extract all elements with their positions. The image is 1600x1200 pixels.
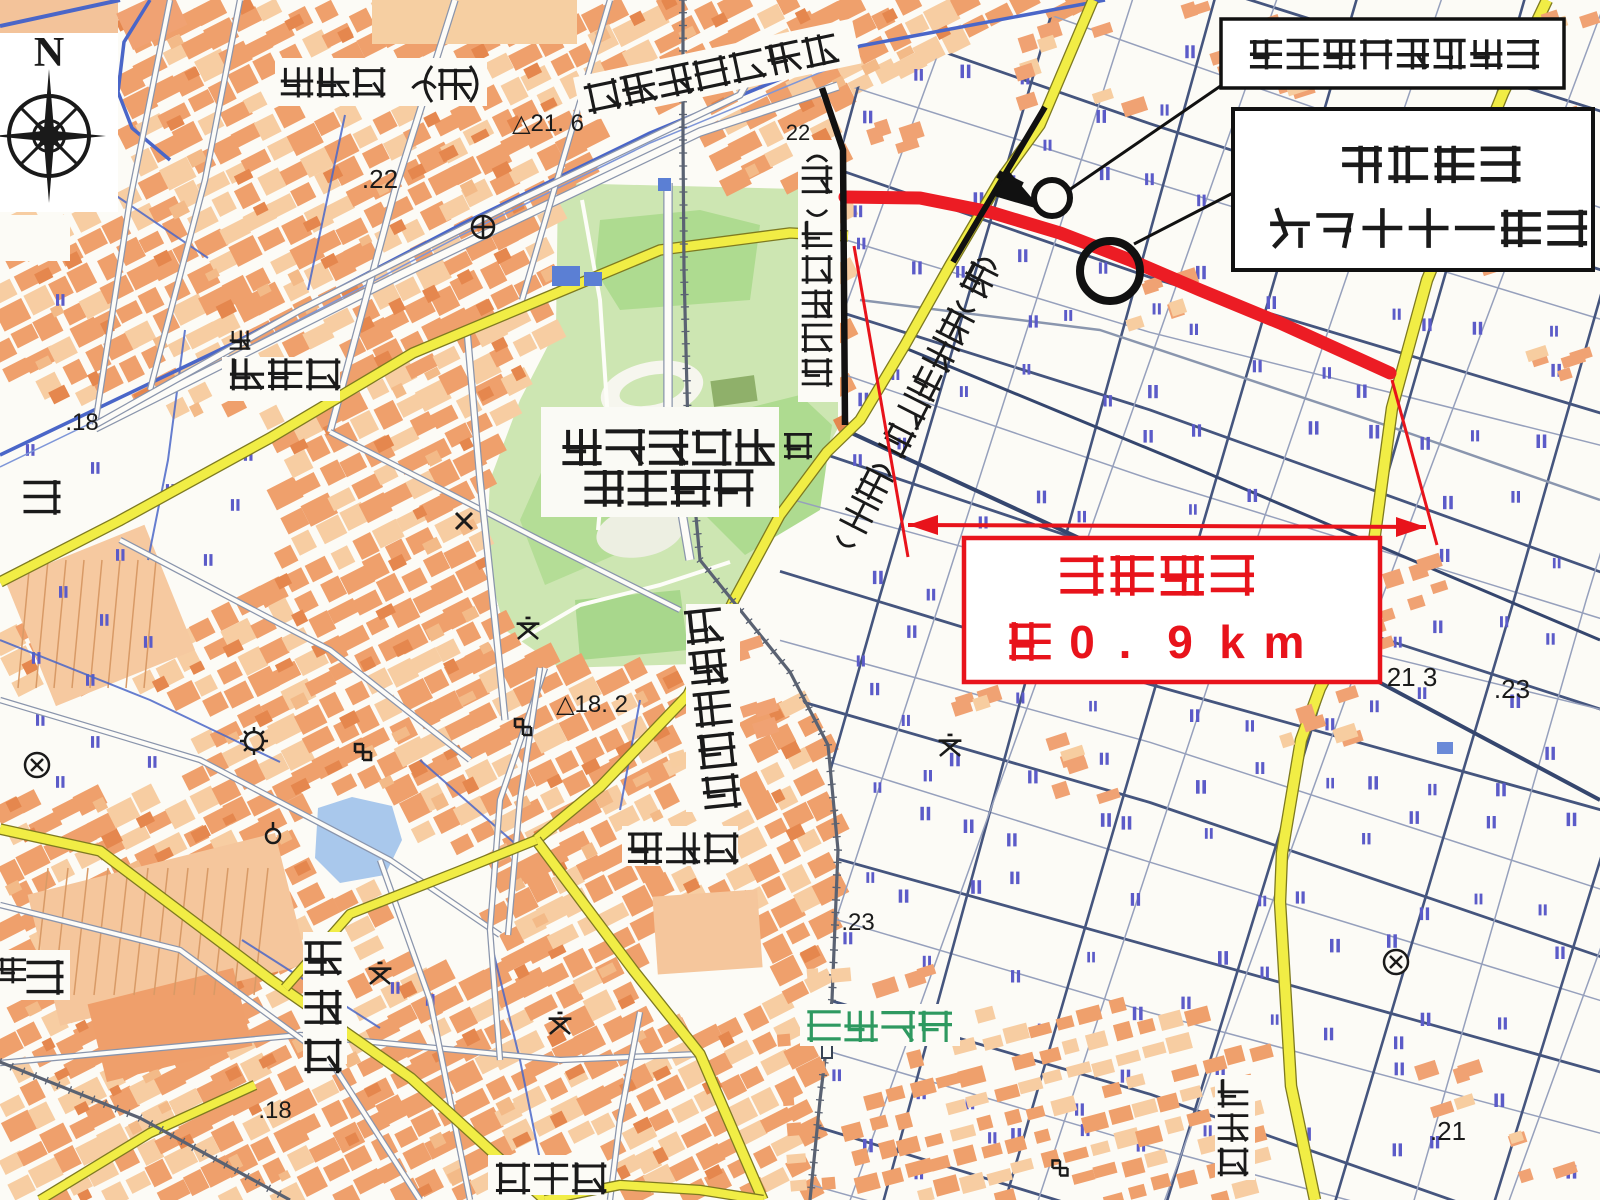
svg-text:.21: .21 <box>1430 1116 1466 1146</box>
svg-text:△21. 6: △21. 6 <box>512 110 584 137</box>
svg-text:9: 9 <box>1167 616 1193 668</box>
svg-text:△18. 2: △18. 2 <box>556 691 628 718</box>
svg-text:.18: .18 <box>65 409 98 436</box>
svg-text:.23: .23 <box>841 909 874 936</box>
svg-text:.: . <box>1119 616 1132 668</box>
svg-text:.23: .23 <box>1494 674 1530 704</box>
svg-text:0: 0 <box>1069 616 1095 668</box>
svg-text:.18: .18 <box>258 1097 291 1124</box>
svg-text:m: m <box>1264 616 1305 668</box>
svg-text:22: 22 <box>786 120 810 145</box>
svg-text:.22: .22 <box>362 164 398 194</box>
svg-text:21 3: 21 3 <box>1387 662 1438 692</box>
svg-text:k: k <box>1219 616 1245 668</box>
